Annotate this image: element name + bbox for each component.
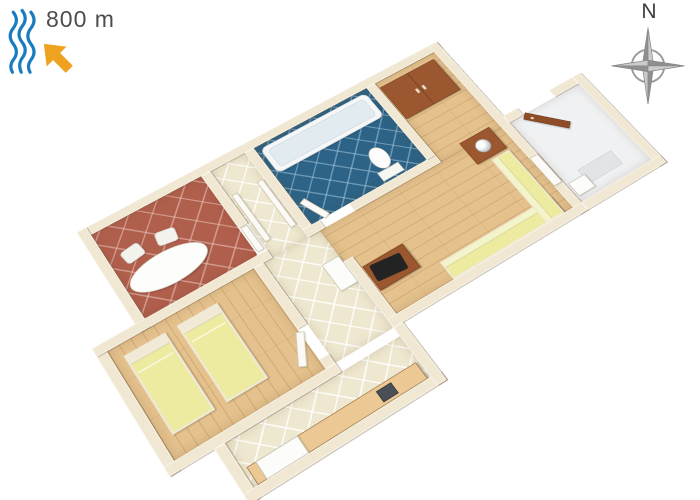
floor-plan-render: 800 m N [0,0,700,500]
bedroom-door [296,331,308,367]
sea-distance-label: 800 m [46,6,115,33]
compass-rose-icon [606,20,690,108]
compass: N [604,0,694,112]
sea-distance-overlay: 800 m [8,4,168,94]
direction-arrow-icon [34,32,82,80]
